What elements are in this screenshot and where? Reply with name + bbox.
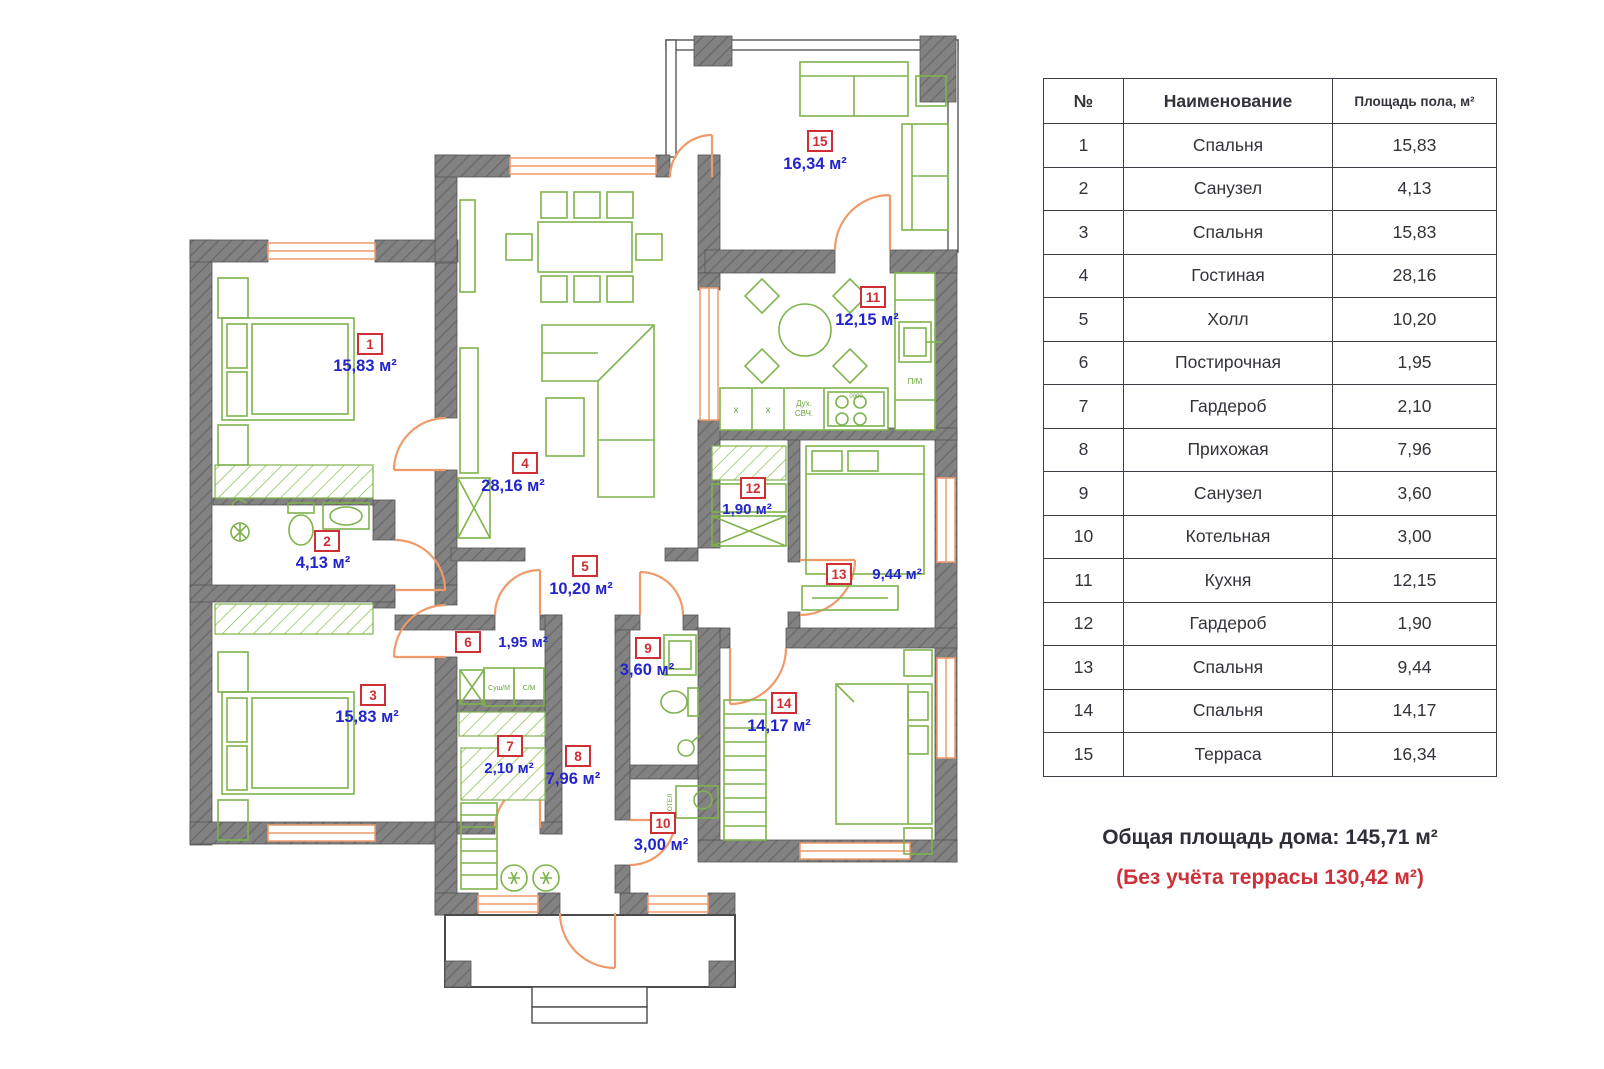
row-num: 3 [1044, 211, 1124, 255]
table-row: 6Постирочная1,95 [1044, 341, 1497, 385]
table-row: 15Терраса16,34 [1044, 733, 1497, 777]
row-area: 3,60 [1333, 472, 1497, 516]
row-name: Спальня [1124, 689, 1333, 733]
room-spec-table: № Наименование Площадь пола, м² 1Спальня… [1043, 78, 1497, 777]
room-11-badge: 11 [860, 286, 886, 308]
row-area: 16,34 [1333, 733, 1497, 777]
row-name: Гардероб [1124, 385, 1333, 429]
table-row: 8Прихожая7,96 [1044, 428, 1497, 472]
row-area: 1,90 [1333, 602, 1497, 646]
cabinet-x1-label: x [734, 405, 739, 416]
room-14-badge: 14 [771, 692, 797, 714]
porch [445, 915, 735, 1023]
room-1-area: 15,83 м² [310, 357, 420, 376]
room-6-badge: 6 [455, 631, 481, 653]
row-num: 12 [1044, 602, 1124, 646]
row-num: 8 [1044, 428, 1124, 472]
table-row: 2Санузел4,13 [1044, 167, 1497, 211]
room-15-area: 16,34 м² [760, 155, 870, 174]
room-4-badge: 4 [512, 452, 538, 474]
table-row: 4Гостиная28,16 [1044, 254, 1497, 298]
washer-dryer-label: Суш/М [488, 685, 510, 692]
room-13-badge: 13 [826, 563, 852, 585]
row-name: Терраса [1124, 733, 1333, 777]
table-row: 10Котельная3,00 [1044, 515, 1497, 559]
row-num: 4 [1044, 254, 1124, 298]
table-row: 13Спальня9,44 [1044, 646, 1497, 690]
room-14-area: 14,17 м² [724, 717, 834, 736]
table-row: 3Спальня15,83 [1044, 211, 1497, 255]
header-num: № [1044, 79, 1124, 124]
oven-label: Дух. [796, 399, 812, 408]
room-8-area: 7,96 м² [518, 770, 628, 789]
room-9-area: 3,60 м² [592, 661, 702, 680]
row-name: Кухня [1124, 559, 1333, 603]
burner-display-label: 0000 [849, 394, 863, 400]
dishwasher-label: П/М [908, 377, 923, 386]
table-row: 9Санузел3,60 [1044, 472, 1497, 516]
room-7-badge: 7 [497, 735, 523, 757]
table-row: 5Холл10,20 [1044, 298, 1497, 342]
row-name: Гостиная [1124, 254, 1333, 298]
row-area: 14,17 [1333, 689, 1497, 733]
row-name: Санузел [1124, 472, 1333, 516]
room-4-area: 28,16 м² [458, 477, 568, 496]
room-11-area: 12,15 м² [812, 311, 922, 330]
row-area: 15,83 [1333, 124, 1497, 168]
header-name: Наименование [1124, 79, 1333, 124]
room-9-badge: 9 [635, 637, 661, 659]
washing-machine-label: С/М [523, 685, 536, 692]
room-15-badge: 15 [807, 130, 833, 152]
row-num: 1 [1044, 124, 1124, 168]
row-num: 6 [1044, 341, 1124, 385]
row-num: 9 [1044, 472, 1124, 516]
table-row: 14Спальня14,17 [1044, 689, 1497, 733]
room-12-badge: 12 [740, 477, 766, 499]
row-area: 10,20 [1333, 298, 1497, 342]
row-num: 11 [1044, 559, 1124, 603]
room-13-area: 9,44 м² [858, 566, 936, 583]
room-8-badge: 8 [565, 745, 591, 767]
header-area: Площадь пола, м² [1333, 79, 1497, 124]
table-row: 12Гардероб1,90 [1044, 602, 1497, 646]
row-num: 5 [1044, 298, 1124, 342]
table-row: 11Кухня12,15 [1044, 559, 1497, 603]
row-num: 13 [1044, 646, 1124, 690]
row-num: 10 [1044, 515, 1124, 559]
room-3-badge: 3 [360, 684, 386, 706]
row-area: 15,83 [1333, 211, 1497, 255]
room-10-area: 3,00 м² [606, 836, 716, 855]
table-row: 7Гардероб2,10 [1044, 385, 1497, 429]
row-num: 7 [1044, 385, 1124, 429]
table-row: 1Спальня15,83 [1044, 124, 1497, 168]
row-area: 2,10 [1333, 385, 1497, 429]
microwave-label: СВЧ. [795, 409, 813, 418]
cabinet-x2-label: x [766, 405, 771, 416]
row-name: Гардероб [1124, 602, 1333, 646]
row-name: Постирочная [1124, 341, 1333, 385]
row-area: 28,16 [1333, 254, 1497, 298]
row-name: Котельная [1124, 515, 1333, 559]
room-2-badge: 2 [314, 530, 340, 552]
room-2-area: 4,13 м² [268, 554, 378, 573]
row-area: 1,95 [1333, 341, 1497, 385]
windows [268, 158, 955, 912]
row-area: 3,00 [1333, 515, 1497, 559]
room-3-area: 15,83 м² [312, 708, 422, 727]
row-name: Спальня [1124, 124, 1333, 168]
row-name: Санузел [1124, 167, 1333, 211]
row-num: 2 [1044, 167, 1124, 211]
row-name: Прихожая [1124, 428, 1333, 472]
row-area: 9,44 [1333, 646, 1497, 690]
room-5-badge: 5 [572, 555, 598, 577]
row-area: 12,15 [1333, 559, 1497, 603]
row-name: Холл [1124, 298, 1333, 342]
room-5-area: 10,20 м² [526, 580, 636, 599]
room-1-badge: 1 [357, 333, 383, 355]
row-area: 4,13 [1333, 167, 1497, 211]
table-header-row: № Наименование Площадь пола, м² [1044, 79, 1497, 124]
room-12-area: 1,90 м² [708, 501, 786, 518]
room-6-area: 1,95 м² [484, 634, 562, 651]
room-10-badge: 10 [650, 812, 676, 834]
row-num: 15 [1044, 733, 1124, 777]
terrace-note-text: (Без учёта террасы 130,42 м²) [1043, 866, 1497, 890]
total-area-text: Общая площадь дома: 145,71 м² [1043, 826, 1497, 850]
row-num: 14 [1044, 689, 1124, 733]
page: x x Дух. СВЧ. 0000 П/М Суш/М С/М КОТЕЛ 1… [0, 0, 1604, 1069]
row-name: Спальня [1124, 646, 1333, 690]
walls [190, 155, 957, 915]
row-area: 7,96 [1333, 428, 1497, 472]
row-name: Спальня [1124, 211, 1333, 255]
